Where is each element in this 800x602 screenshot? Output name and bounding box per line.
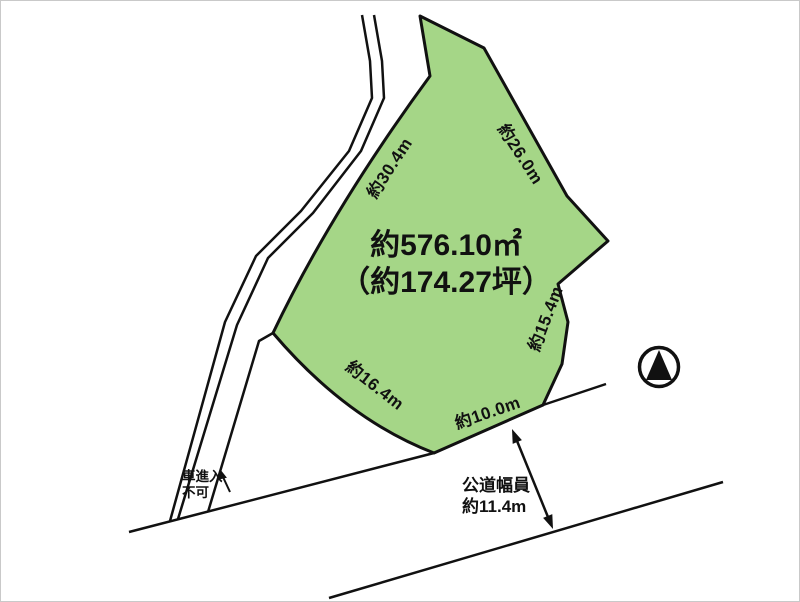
no-entry-line1: 車進入 xyxy=(182,469,223,485)
no-entry-line2: 不可 xyxy=(182,485,223,501)
no-entry-label: 車進入 不可 xyxy=(182,469,223,501)
road-width-value: 約11.4m xyxy=(462,496,530,517)
road-width-label: 公道幅員 約11.4m xyxy=(462,475,530,517)
plot-area-square-meters: 約576.10㎡ xyxy=(340,227,552,264)
plot-area-label: 約576.10㎡ （約174.27坪） xyxy=(340,227,552,301)
road-width-title: 公道幅員 xyxy=(462,475,530,496)
plot-plan-drawing xyxy=(1,1,800,602)
land-plot-diagram: 約30.4m 約26.0m 約15.4m 約16.4m 約10.0m 約576.… xyxy=(0,0,800,602)
plot-area-tsubo: （約174.27坪） xyxy=(340,264,552,301)
north-compass-icon xyxy=(640,348,679,387)
